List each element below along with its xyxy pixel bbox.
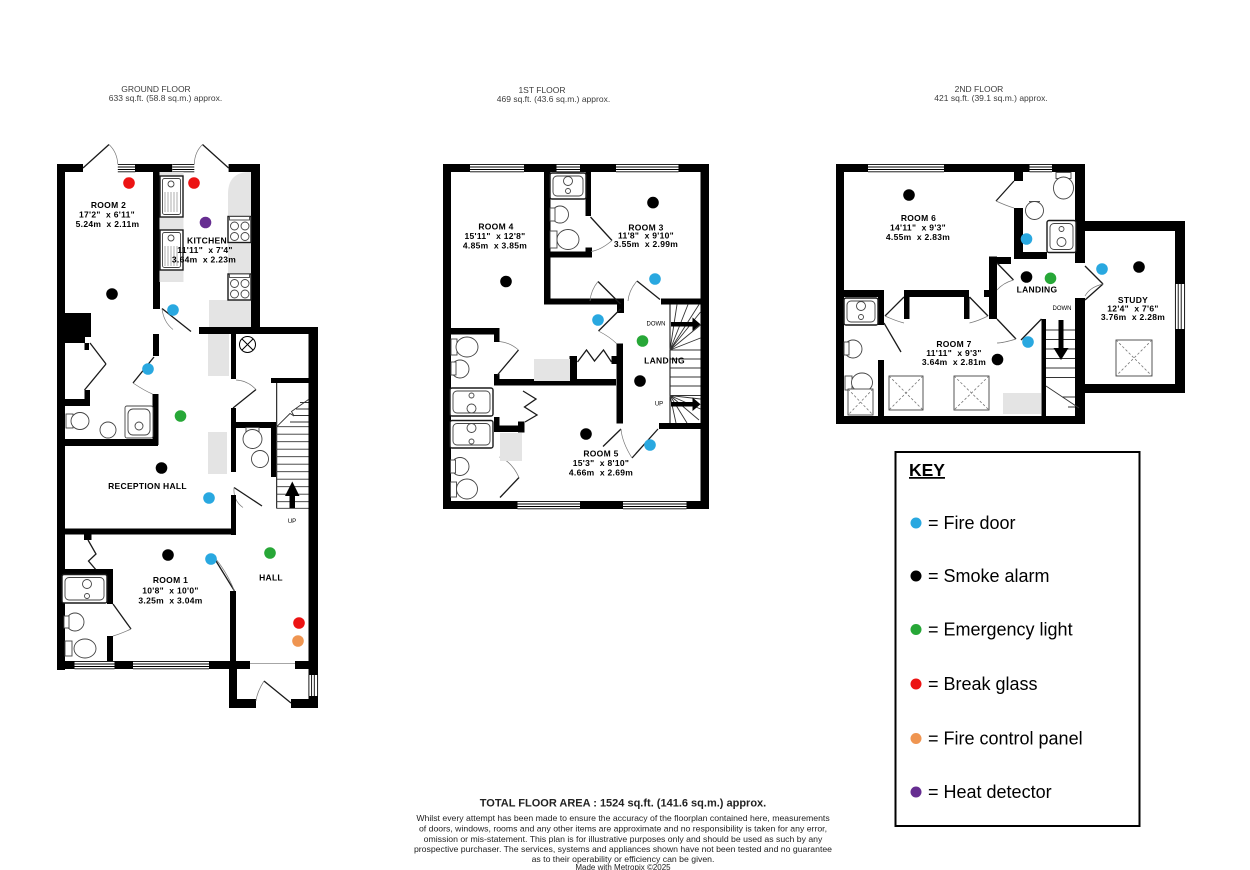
svg-text:3.64m x 2.81m: 3.64m x 2.81m	[922, 357, 986, 367]
svg-text:ROOM 6: ROOM 6	[901, 213, 936, 223]
svg-text:= Fire control panel: = Fire control panel	[928, 729, 1083, 749]
svg-text:ROOM 4: ROOM 4	[478, 222, 513, 232]
svg-text:= Heat detector: = Heat detector	[928, 782, 1052, 802]
svg-text:of doors, windows, rooms and a: of doors, windows, rooms and any other i…	[419, 823, 827, 833]
svg-text:3.64m x 2.23m: 3.64m x 2.23m	[172, 254, 236, 264]
svg-text:= Break glass: = Break glass	[928, 674, 1038, 694]
svg-text:= Fire door: = Fire door	[928, 513, 1016, 533]
svg-text:421 sq.ft. (39.1 sq.m.) approx: 421 sq.ft. (39.1 sq.m.) approx.	[934, 93, 1047, 103]
svg-text:omission or mis-statement. Thi: omission or mis-statement. This plan is …	[424, 834, 823, 844]
svg-text:Whilst every attempt has been: Whilst every attempt has been made to en…	[416, 813, 830, 823]
svg-text:3.25m x 3.04m: 3.25m x 3.04m	[138, 596, 202, 606]
svg-text:3.55m x 2.99m: 3.55m x 2.99m	[614, 239, 678, 249]
svg-text:KITCHEN: KITCHEN	[187, 235, 227, 245]
svg-text:ROOM 2: ROOM 2	[91, 200, 126, 210]
svg-text:DOWN: DOWN	[647, 322, 666, 328]
svg-text:469 sq.ft. (43.6 sq.m.) approx: 469 sq.ft. (43.6 sq.m.) approx.	[497, 94, 610, 104]
svg-text:RECEPTION HALL: RECEPTION HALL	[108, 481, 187, 491]
svg-text:17'2" x 6'11": 17'2" x 6'11"	[79, 210, 135, 220]
svg-text:UP: UP	[288, 519, 296, 525]
svg-text:TOTAL FLOOR AREA : 1524 sq.ft.: TOTAL FLOOR AREA : 1524 sq.ft. (141.6 sq…	[480, 798, 766, 810]
svg-text:Made with Metropix ©2025: Made with Metropix ©2025	[575, 863, 671, 870]
svg-text:LANDING: LANDING	[1017, 285, 1058, 295]
svg-text:633 sq.ft. (58.8 sq.m.) approx: 633 sq.ft. (58.8 sq.m.) approx.	[109, 93, 222, 103]
svg-text:LANDING: LANDING	[644, 355, 685, 365]
svg-text:UP: UP	[655, 402, 663, 408]
svg-text:KEY: KEY	[909, 460, 945, 480]
svg-text:4.55m x 2.83m: 4.55m x 2.83m	[886, 232, 950, 242]
svg-text:prospective purchaser. The ser: prospective purchaser. The services, sys…	[414, 844, 832, 854]
svg-text:14'11" x 9'3": 14'11" x 9'3"	[890, 222, 946, 232]
svg-text:= Smoke alarm: = Smoke alarm	[928, 566, 1050, 586]
svg-text:4.66m x 2.69m: 4.66m x 2.69m	[569, 467, 633, 477]
svg-text:10'8" x 10'0": 10'8" x 10'0"	[142, 586, 198, 596]
svg-text:4.85m x 3.85m: 4.85m x 3.85m	[463, 240, 527, 250]
svg-text:5.24m x 2.11m: 5.24m x 2.11m	[76, 219, 140, 229]
svg-text:ROOM 1: ROOM 1	[153, 575, 188, 585]
svg-text:DOWN: DOWN	[1053, 306, 1072, 312]
svg-text:HALL: HALL	[259, 573, 283, 583]
svg-text:= Emergency light: = Emergency light	[928, 620, 1073, 640]
svg-text:3.76m x 2.28m: 3.76m x 2.28m	[1101, 312, 1165, 322]
